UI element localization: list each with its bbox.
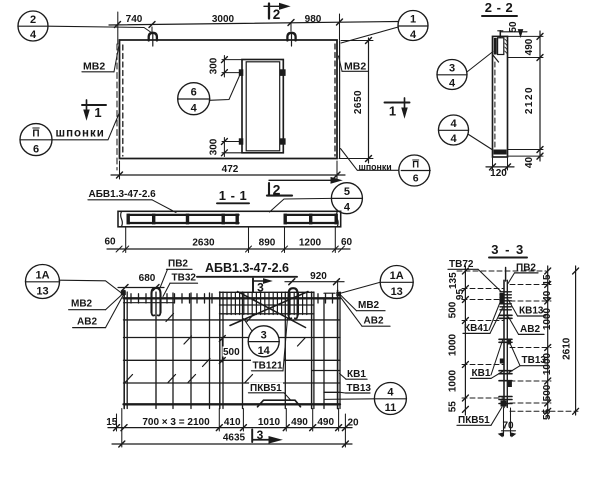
svg-text:40: 40 — [542, 290, 553, 302]
svg-text:300: 300 — [209, 138, 220, 155]
svg-text:20: 20 — [347, 418, 359, 429]
svg-text:ПКВ51: ПКВ51 — [458, 415, 490, 426]
svg-text:472: 472 — [222, 164, 239, 175]
svg-text:1: 1 — [94, 105, 101, 120]
svg-text:4: 4 — [450, 133, 457, 145]
svg-text:2: 2 — [273, 7, 281, 22]
svg-text:6: 6 — [33, 144, 39, 156]
svg-text:2 - 2: 2 - 2 — [485, 0, 514, 15]
svg-text:40: 40 — [524, 157, 535, 169]
svg-text:55: 55 — [542, 408, 553, 420]
svg-text:1200: 1200 — [299, 238, 322, 249]
svg-text:740: 740 — [126, 14, 143, 25]
svg-text:6: 6 — [191, 87, 197, 99]
svg-text:70: 70 — [502, 421, 514, 432]
svg-text:4: 4 — [387, 387, 394, 399]
svg-text:500: 500 — [542, 384, 553, 401]
svg-text:920: 920 — [310, 271, 327, 282]
svg-text:1 - 1: 1 - 1 — [219, 188, 248, 203]
svg-text:60: 60 — [104, 237, 116, 248]
svg-text:50: 50 — [508, 21, 519, 33]
svg-text:КВ41: КВ41 — [464, 323, 489, 334]
svg-text:1: 1 — [410, 14, 416, 26]
svg-text:680: 680 — [139, 273, 156, 284]
svg-text:500: 500 — [223, 347, 240, 358]
svg-text:МВ2: МВ2 — [71, 299, 93, 310]
svg-text:490: 490 — [291, 417, 308, 428]
svg-text:1А: 1А — [390, 270, 404, 282]
svg-text:2630: 2630 — [192, 238, 215, 249]
svg-text:4: 4 — [410, 29, 417, 41]
svg-text:15: 15 — [542, 274, 553, 286]
svg-text:980: 980 — [305, 14, 322, 25]
svg-text:П: П — [32, 129, 39, 140]
svg-text:95: 95 — [455, 289, 466, 301]
svg-text:КВ13: КВ13 — [519, 306, 544, 317]
svg-text:490: 490 — [317, 417, 334, 428]
svg-text:ПВ2: ПВ2 — [516, 263, 536, 274]
svg-text:АБВ1.3-47-2.6: АБВ1.3-47-2.6 — [205, 261, 289, 275]
svg-text:11: 11 — [385, 402, 397, 414]
svg-text:490: 490 — [524, 38, 535, 55]
svg-text:60: 60 — [341, 237, 353, 248]
svg-text:500: 500 — [448, 301, 459, 318]
svg-text:ТВ32: ТВ32 — [172, 273, 197, 284]
svg-text:МВ2: МВ2 — [344, 61, 366, 73]
svg-text:135: 135 — [448, 272, 459, 289]
svg-text:4: 4 — [30, 29, 37, 41]
svg-text:1000: 1000 — [542, 307, 553, 330]
svg-text:3: 3 — [449, 63, 455, 75]
svg-text:МВ2: МВ2 — [83, 61, 105, 73]
svg-text:13: 13 — [36, 286, 48, 298]
svg-text:14: 14 — [258, 345, 271, 357]
svg-text:П: П — [412, 160, 419, 171]
svg-text:МВ2: МВ2 — [358, 300, 380, 311]
svg-text:4: 4 — [191, 103, 198, 115]
svg-text:1010: 1010 — [258, 417, 281, 428]
svg-text:410: 410 — [224, 417, 241, 428]
svg-text:КВ1: КВ1 — [472, 368, 491, 379]
svg-text:1А: 1А — [35, 270, 49, 282]
svg-text:1000: 1000 — [542, 352, 553, 375]
svg-text:2610: 2610 — [562, 337, 573, 360]
svg-text:4: 4 — [344, 202, 351, 214]
svg-text:3: 3 — [261, 330, 267, 342]
svg-text:4: 4 — [450, 118, 457, 130]
svg-text:2120: 2120 — [524, 86, 535, 114]
svg-text:ТВ121: ТВ121 — [253, 361, 283, 372]
svg-text:АБВ1.3-47-2.6: АБВ1.3-47-2.6 — [89, 189, 157, 200]
svg-text:шпонки: шпонки — [56, 128, 105, 140]
svg-text:2650: 2650 — [353, 90, 364, 114]
svg-text:ТВ72: ТВ72 — [449, 259, 474, 270]
svg-text:АВ2: АВ2 — [520, 324, 540, 335]
svg-text:300: 300 — [209, 57, 220, 74]
svg-text:55: 55 — [448, 401, 459, 413]
svg-text:2: 2 — [30, 14, 36, 26]
svg-text:1000: 1000 — [448, 369, 459, 392]
svg-text:АВ2: АВ2 — [364, 316, 384, 327]
svg-text:4635: 4635 — [223, 433, 246, 444]
svg-text:ТВ13: ТВ13 — [347, 383, 372, 394]
svg-text:1: 1 — [389, 104, 396, 119]
svg-text:5: 5 — [344, 186, 350, 198]
svg-text:15: 15 — [106, 417, 118, 428]
svg-text:АВ2: АВ2 — [77, 317, 97, 328]
svg-text:13: 13 — [391, 286, 403, 298]
svg-text:120: 120 — [490, 168, 507, 179]
svg-text:3 - 3: 3 - 3 — [491, 242, 525, 257]
svg-text:700 × 3 = 2100: 700 × 3 = 2100 — [142, 417, 210, 428]
svg-text:3000: 3000 — [212, 14, 235, 25]
svg-text:ПВ2: ПВ2 — [168, 259, 188, 270]
svg-text:4: 4 — [449, 78, 456, 90]
svg-text:890: 890 — [259, 238, 276, 249]
svg-text:1000: 1000 — [448, 333, 459, 356]
svg-text:КВ1: КВ1 — [347, 369, 366, 380]
svg-text:6: 6 — [413, 173, 419, 185]
